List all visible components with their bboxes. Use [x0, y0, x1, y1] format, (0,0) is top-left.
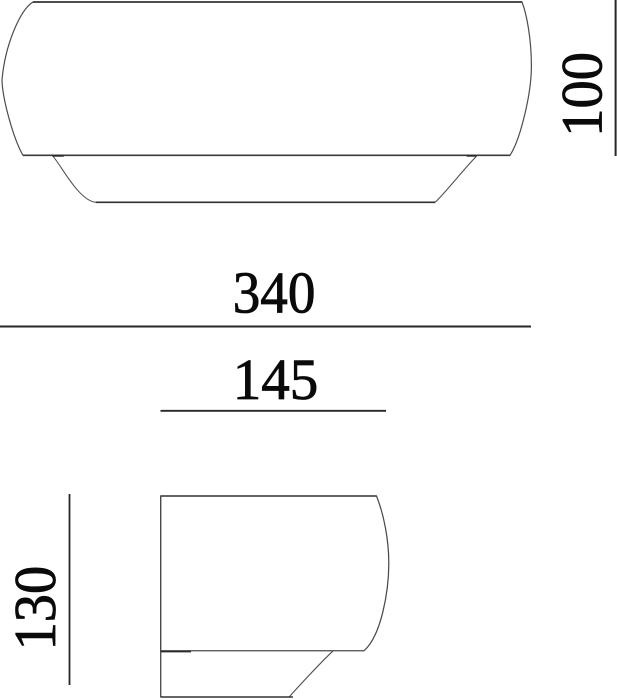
- svg-text:145: 145: [233, 347, 319, 412]
- svg-text:130: 130: [2, 566, 68, 651]
- svg-text:340: 340: [233, 260, 316, 326]
- svg-text:100: 100: [549, 52, 614, 137]
